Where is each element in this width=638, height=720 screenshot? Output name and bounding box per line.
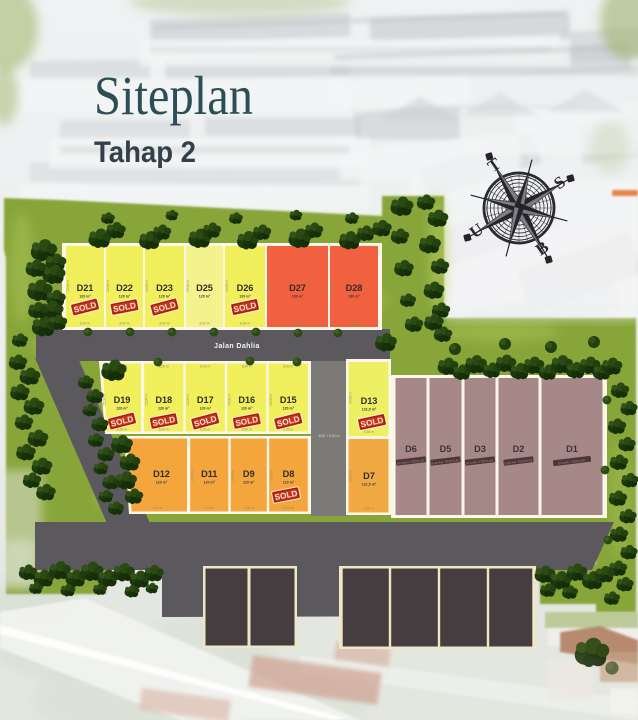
svg-text:D21: D21 <box>77 283 94 293</box>
svg-text:8,00 m: 8,00 m <box>119 322 129 326</box>
svg-text:15,00 m: 15,00 m <box>349 470 353 482</box>
svg-text:180 m²: 180 m² <box>292 295 304 299</box>
svg-text:120 m²: 120 m² <box>200 407 212 411</box>
svg-text:6,00 m: 6,00 m <box>244 506 254 510</box>
svg-text:D26: D26 <box>237 283 254 293</box>
svg-text:D16: D16 <box>238 395 255 405</box>
svg-text:D7: D7 <box>363 471 375 481</box>
svg-text:12,00 m: 12,00 m <box>348 322 360 326</box>
svg-text:D18: D18 <box>155 395 172 405</box>
svg-text:6,00 m: 6,00 m <box>283 428 293 432</box>
svg-text:8,00 m: 8,00 m <box>200 365 210 369</box>
svg-text:D27: D27 <box>289 283 306 293</box>
svg-text:6,00 m: 6,00 m <box>159 428 169 432</box>
svg-text:15,00 m: 15,00 m <box>231 470 235 482</box>
svg-text:15,00 m: 15,00 m <box>145 280 149 292</box>
svg-text:120 m²: 120 m² <box>159 295 171 299</box>
svg-text:8,00 m: 8,00 m <box>199 322 209 326</box>
svg-text:120 m²: 120 m² <box>204 481 216 485</box>
svg-text:120 m²: 120 m² <box>116 407 128 411</box>
svg-text:Jalan Dahlia: Jalan Dahlia <box>214 343 260 350</box>
svg-text:D1: D1 <box>566 444 578 454</box>
svg-text:15,00 m: 15,00 m <box>106 280 110 292</box>
svg-text:120 m²: 120 m² <box>243 481 255 485</box>
svg-text:6,00 m: 6,00 m <box>152 506 162 510</box>
svg-text:15,00 m: 15,00 m <box>267 280 271 292</box>
svg-text:8,03 m: 8,03 m <box>364 430 374 434</box>
svg-text:8,03 m: 8,03 m <box>364 507 374 511</box>
svg-text:D9: D9 <box>243 469 255 479</box>
svg-text:D28: D28 <box>346 283 363 293</box>
svg-text:15,00 m: 15,00 m <box>349 392 353 404</box>
svg-text:15,00 m: 15,00 m <box>225 280 229 292</box>
svg-text:6,00 m: 6,00 m <box>283 506 293 510</box>
svg-text:Siteplan: Siteplan <box>94 65 253 126</box>
svg-text:15,00 m: 15,00 m <box>191 470 195 482</box>
svg-text:120 m²: 120 m² <box>158 407 170 411</box>
svg-text:D12: D12 <box>153 469 170 479</box>
svg-text:15,00 m: 15,00 m <box>330 280 334 292</box>
svg-text:15,00 m: 15,00 m <box>145 394 149 406</box>
svg-text:6,00 m: 6,00 m <box>117 428 127 432</box>
svg-text:D13: D13 <box>361 396 378 406</box>
svg-text:15,00 m: 15,00 m <box>66 280 70 292</box>
svg-text:D22: D22 <box>116 283 133 293</box>
svg-text:120 m²: 120 m² <box>241 407 253 411</box>
svg-text:8,00 m: 8,00 m <box>283 365 293 369</box>
svg-text:6,00 m: 6,00 m <box>204 506 214 510</box>
svg-text:6,00 m: 6,00 m <box>200 428 210 432</box>
svg-text:15,00 m: 15,00 m <box>186 394 190 406</box>
svg-text:180 m²: 180 m² <box>348 295 360 299</box>
svg-text:8,00 + 8,00 m: 8,00 + 8,00 m <box>319 434 340 438</box>
svg-text:D15: D15 <box>280 395 297 405</box>
svg-text:15,00 m: 15,00 m <box>228 394 232 406</box>
svg-text:D25: D25 <box>196 283 213 293</box>
svg-text:15,00 m: 15,00 m <box>186 280 190 292</box>
svg-text:D8: D8 <box>283 469 295 479</box>
svg-text:120 m²: 120 m² <box>156 481 168 485</box>
svg-text:8,00 m: 8,00 m <box>240 322 250 326</box>
svg-text:D23: D23 <box>156 283 173 293</box>
svg-text:121,5 m²: 121,5 m² <box>362 408 377 412</box>
svg-text:15,00 m: 15,00 m <box>270 470 274 482</box>
svg-text:120 m²: 120 m² <box>239 295 251 299</box>
svg-text:120 m²: 120 m² <box>119 295 131 299</box>
svg-text:121,5 m²: 121,5 m² <box>362 483 377 487</box>
svg-text:120 m²: 120 m² <box>283 481 295 485</box>
svg-text:D17: D17 <box>197 395 214 405</box>
svg-text:15,00 m: 15,00 m <box>269 394 273 406</box>
svg-text:120 m²: 120 m² <box>199 295 211 299</box>
svg-text:D6: D6 <box>405 444 417 454</box>
svg-text:D3: D3 <box>474 444 486 454</box>
svg-text:120 m²: 120 m² <box>79 295 91 299</box>
svg-text:8,00 m: 8,00 m <box>80 322 90 326</box>
svg-text:12,00 m: 12,00 m <box>292 322 304 326</box>
svg-text:D2: D2 <box>513 444 525 454</box>
svg-text:D11: D11 <box>201 469 217 479</box>
svg-text:D5: D5 <box>440 444 452 454</box>
svg-text:D19: D19 <box>114 395 131 405</box>
svg-text:6,00 m: 6,00 m <box>242 428 252 432</box>
svg-text:120 m²: 120 m² <box>283 407 295 411</box>
svg-text:8,00 m: 8,00 m <box>159 322 169 326</box>
svg-text:Tahap 2: Tahap 2 <box>94 136 196 169</box>
